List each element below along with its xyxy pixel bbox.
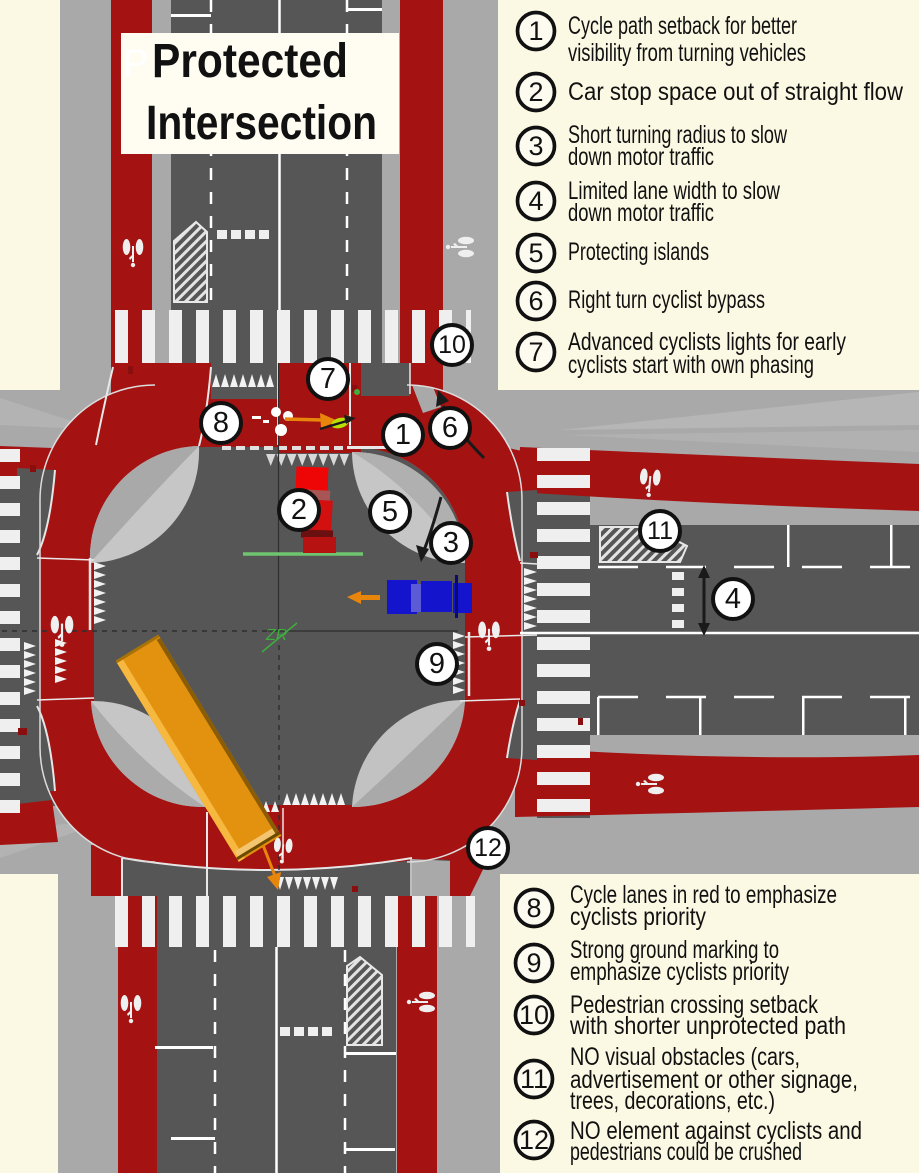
svg-text:10: 10 — [519, 1000, 549, 1030]
svg-text:trees, decorations, etc.): trees, decorations, etc.) — [570, 1087, 775, 1115]
svg-text:11: 11 — [647, 517, 673, 545]
svg-text:1: 1 — [395, 419, 411, 451]
svg-text:4: 4 — [725, 583, 741, 615]
svg-text:Protected: Protected — [152, 35, 348, 88]
svg-text:3: 3 — [528, 131, 543, 161]
svg-text:pedestrians could be crushed: pedestrians could be crushed — [570, 1138, 802, 1166]
svg-text:7: 7 — [320, 363, 336, 395]
svg-text:3: 3 — [443, 527, 459, 559]
svg-text:cyclists start with own phasin: cyclists start with own phasing — [568, 351, 814, 379]
svg-text:cyclists priority: cyclists priority — [570, 903, 706, 931]
svg-text:6: 6 — [528, 286, 543, 316]
svg-text:visibility from turning vehicl: visibility from turning vehicles — [568, 39, 806, 67]
svg-text:2: 2 — [528, 77, 543, 107]
svg-text:with shorter unprotected path: with shorter unprotected path — [569, 1012, 846, 1040]
svg-text:5: 5 — [382, 496, 398, 528]
svg-text:8: 8 — [526, 893, 541, 923]
svg-text:5: 5 — [528, 238, 543, 268]
svg-text:Cycle path setback for better: Cycle path setback for better — [568, 12, 797, 40]
svg-text:P: P — [123, 43, 148, 85]
svg-text:down motor traffic: down motor traffic — [568, 143, 714, 171]
svg-text:12: 12 — [474, 834, 502, 862]
svg-text:Intersection: Intersection — [146, 97, 377, 150]
svg-text:Right turn cyclist bypass: Right turn cyclist bypass — [568, 286, 765, 314]
svg-text:12: 12 — [519, 1125, 549, 1155]
svg-text:4: 4 — [528, 186, 543, 216]
svg-text:Car stop space out of straight: Car stop space out of straight flow — [568, 78, 904, 106]
svg-text:7: 7 — [528, 337, 543, 367]
svg-text:9: 9 — [429, 648, 445, 680]
svg-text:emphasize cyclists priority: emphasize cyclists priority — [570, 958, 789, 986]
svg-text:ZR: ZR — [265, 627, 288, 644]
svg-text:1: 1 — [528, 16, 543, 46]
svg-text:8: 8 — [213, 407, 229, 439]
svg-text:11: 11 — [520, 1064, 548, 1094]
svg-text:Protecting islands: Protecting islands — [568, 238, 709, 266]
svg-text:9: 9 — [526, 948, 541, 978]
svg-text:6: 6 — [442, 412, 458, 444]
svg-text:10: 10 — [438, 331, 466, 359]
svg-text:down motor traffic: down motor traffic — [568, 199, 714, 227]
svg-text:2: 2 — [291, 494, 307, 526]
